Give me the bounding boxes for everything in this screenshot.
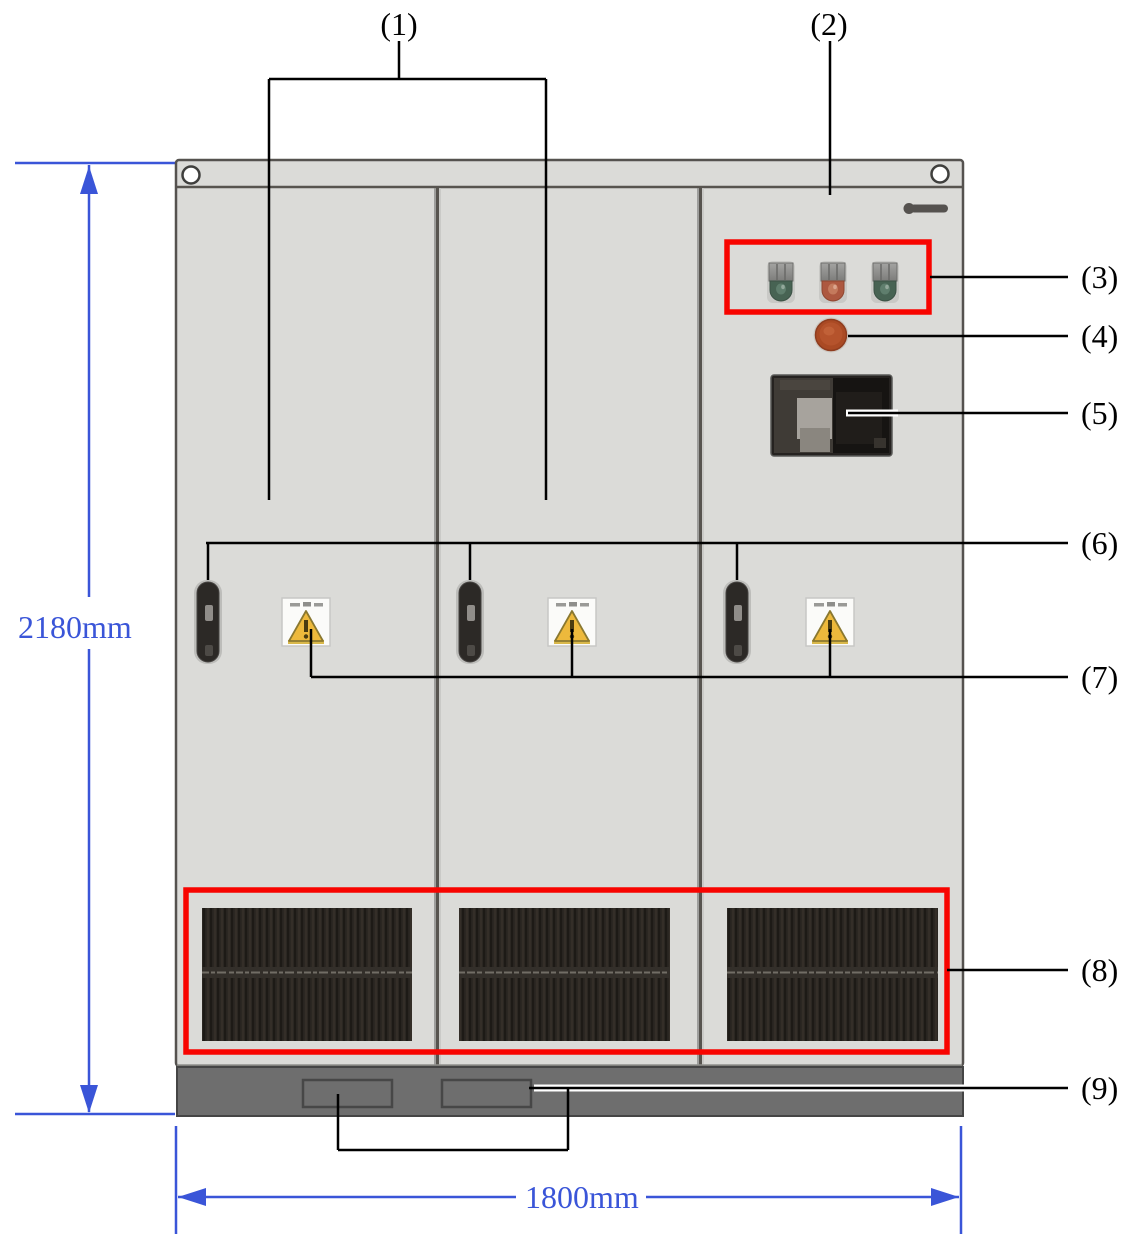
svg-text:2180mm: 2180mm [18,609,132,645]
svg-text:(4): (4) [1081,318,1118,354]
svg-text:(5): (5) [1081,395,1118,431]
svg-text:(9): (9) [1081,1070,1118,1106]
svg-text:(1): (1) [380,6,417,42]
svg-text:(3): (3) [1081,259,1118,295]
svg-text:(7): (7) [1081,659,1118,695]
svg-text:(2): (2) [810,6,847,42]
svg-text:(8): (8) [1081,952,1118,988]
svg-text:1800mm: 1800mm [525,1179,639,1215]
svg-text:(6): (6) [1081,525,1118,561]
